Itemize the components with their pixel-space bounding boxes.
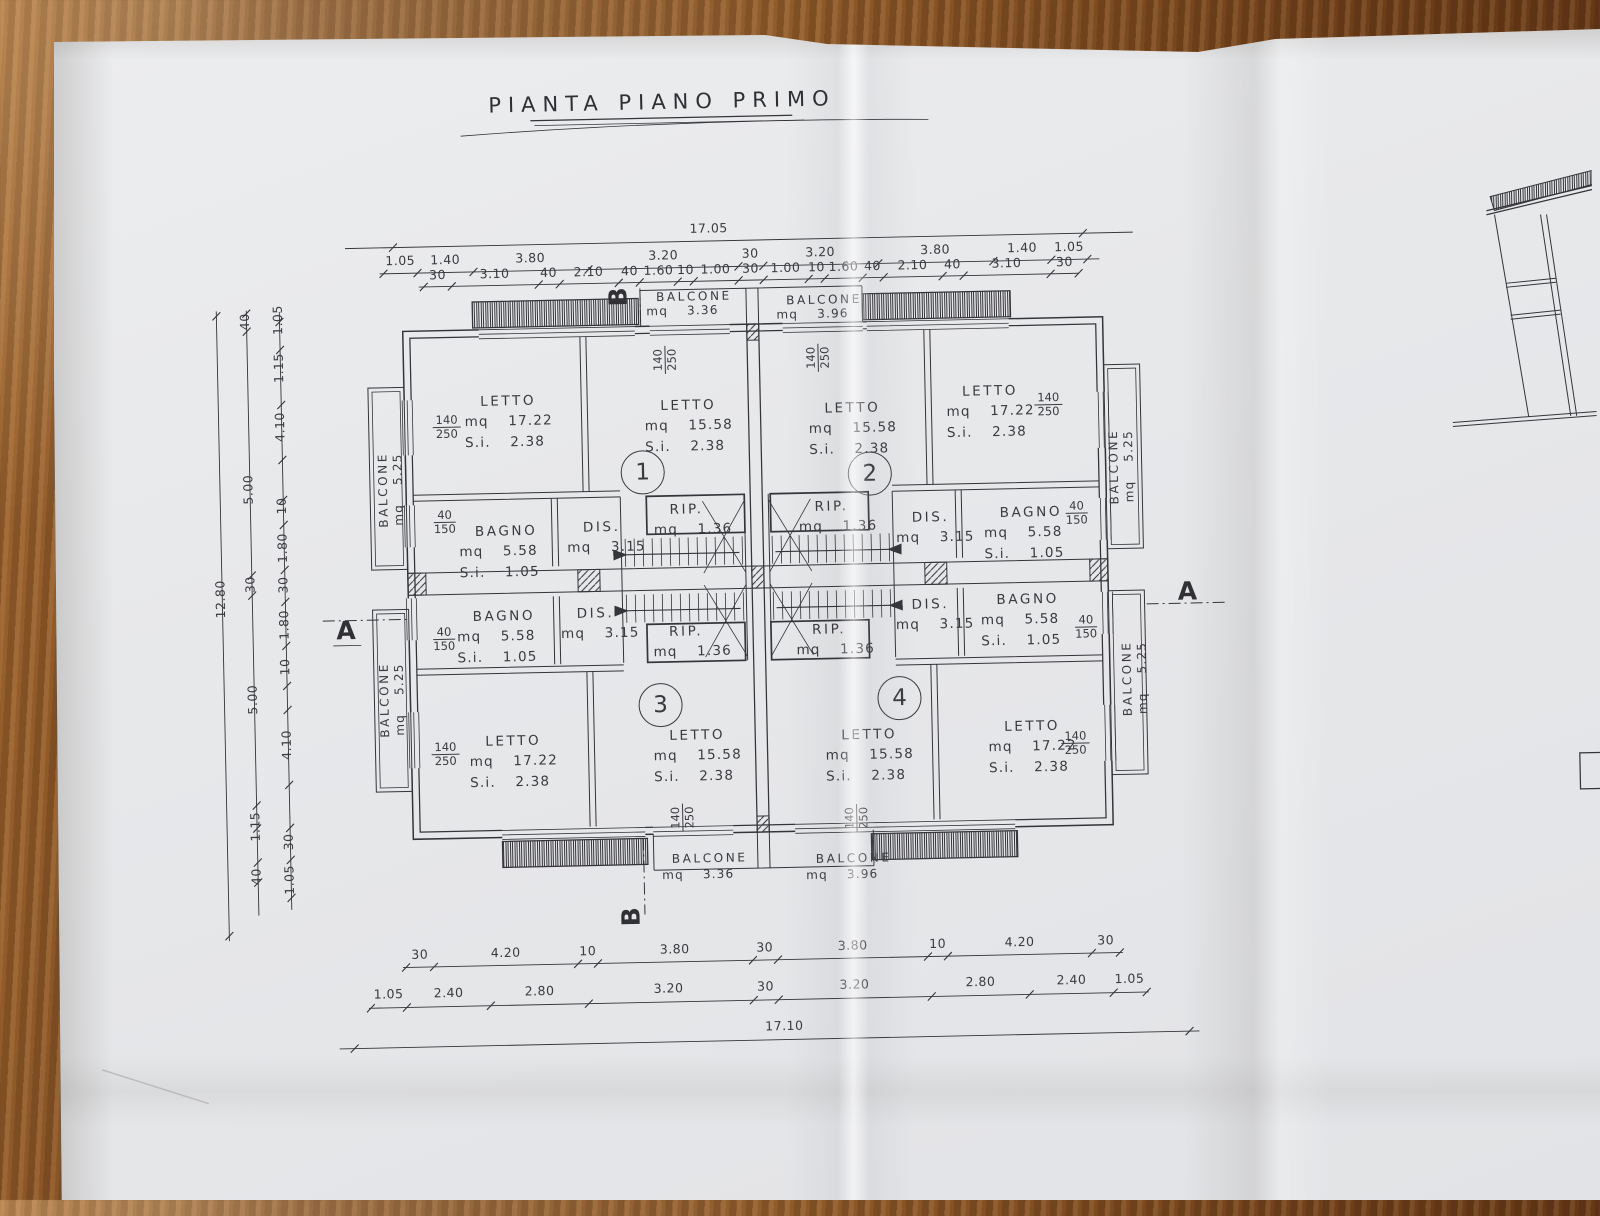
balcone-side-left-top: BALCONE mq 5.25 — [375, 452, 407, 528]
room-si: S.i. 1.05 — [981, 629, 1061, 651]
balcone-top-left: BALCONE mq 3.36 — [646, 289, 732, 320]
window-size-140-250: 140 250 — [431, 741, 460, 769]
window-size-140-250: 140 250 — [651, 346, 679, 375]
room-name: BALCONE — [1106, 429, 1123, 505]
window-size-140-250: 140 250 — [843, 804, 871, 833]
balcone-side-right-top: BALCONE mq 5.25 — [1106, 428, 1138, 504]
dim-bot2-2: 2.80 — [524, 983, 554, 999]
room-si: S.i. 2.38 — [470, 771, 559, 793]
window-height: 250 — [857, 804, 871, 832]
dim-bot2-1: 2.40 — [433, 985, 463, 1001]
dim-bottom-overall: 17.10 — [765, 1018, 804, 1034]
dim-top3-4: 40 — [621, 263, 638, 278]
room-area: mq 3.15 — [896, 527, 975, 549]
room-name: DIS. — [576, 603, 639, 625]
dim-bot2-3: 3.20 — [653, 980, 683, 996]
dim-top2-4: 30 — [742, 245, 759, 260]
dim-top2-6: 3.80 — [920, 241, 950, 257]
dim-top3-14: 40 — [944, 256, 961, 271]
room-name: DIS. — [912, 507, 975, 529]
room-name: LETTO — [480, 390, 553, 412]
dim-top3-6: 10 — [677, 262, 694, 277]
room-name: BAGNO — [473, 606, 537, 628]
dim-lin-5: 30 — [275, 576, 290, 593]
room-area: mq 3.96 — [776, 306, 862, 322]
room-name: LETTO — [669, 724, 742, 746]
room-name: DIS. — [583, 516, 646, 538]
room-area: mq 3.36 — [662, 866, 748, 883]
room-name: RIP. — [814, 496, 877, 518]
room-area: mq 17.22 — [464, 411, 553, 433]
dim-top2-0: 1.05 — [385, 253, 415, 269]
room-si: S.i. 2.38 — [654, 765, 743, 787]
balcone-bottom-right: BALCONE mq 3.96 — [806, 850, 892, 883]
room-area: mq 15.58 — [825, 744, 914, 766]
room-area: mq 5.25 — [390, 452, 407, 528]
dim-lin-6: 1.80 — [276, 610, 292, 640]
room-name: BALCONE — [816, 850, 892, 867]
window-size-140-250: 140 250 — [432, 414, 461, 442]
section-marker-b-top: B — [603, 287, 632, 307]
room-name: DIS. — [911, 594, 974, 616]
dim-top2-3: 3.20 — [648, 247, 678, 263]
window-size-140-250: 140 250 — [1034, 391, 1063, 419]
room-name: LETTO — [962, 380, 1035, 402]
dim-bot1-0: 30 — [411, 947, 428, 962]
room-name: BALCONE — [375, 452, 392, 528]
dim-top2-7: 1.40 — [1007, 240, 1037, 256]
dim-lin-2: 4.10 — [272, 412, 288, 442]
dim-top3-10: 10 — [808, 259, 825, 274]
dim-top-overall: 17.05 — [689, 220, 728, 236]
window-height: 250 — [819, 343, 833, 371]
room-rip-bl: RIP. mq 1.36 — [653, 621, 732, 663]
dim-bot2-7: 2.40 — [1056, 972, 1086, 988]
room-dis-rb: DIS. mq 3.15 — [895, 594, 974, 636]
room-letto-bl-a: LETTO mq 17.22 S.i. 2.38 — [469, 730, 559, 793]
balcone-side-left-bottom: BALCONE mq 5.25 — [377, 662, 409, 738]
room-name: LETTO — [660, 395, 733, 417]
room-dis-rt: DIS. mq 3.15 — [896, 507, 975, 549]
room-rip-tr: RIP. mq 1.36 — [798, 496, 877, 538]
room-area: mq 3.96 — [806, 866, 892, 883]
room-area: mq 5.25 — [1121, 428, 1138, 504]
dim-top3-16: 30 — [1056, 254, 1073, 269]
dim-bot1-2: 10 — [579, 943, 596, 958]
window-size-140-250: 140 250 — [669, 803, 697, 832]
dim-bot1-3: 3.80 — [660, 941, 690, 957]
room-name: RIP. — [812, 619, 875, 641]
dim-bot2-8: 1.05 — [1114, 971, 1144, 987]
window-height: 150 — [433, 640, 455, 654]
dim-top3-7: 1.00 — [700, 261, 730, 277]
room-rip-tl: RIP. mq 1.36 — [653, 499, 732, 541]
room-area: mq 5.58 — [984, 522, 1064, 544]
room-area: mq 17.22 — [470, 751, 559, 773]
window-size-140-250: 140 250 — [1061, 729, 1090, 757]
room-bagno-rb: BAGNO mq 5.58 S.i. 1.05 — [980, 589, 1061, 651]
dim-lin-8: 4.10 — [279, 730, 295, 760]
dim-bot1-1: 4.20 — [491, 945, 521, 961]
window-height: 250 — [683, 803, 697, 831]
room-area: mq 5.58 — [981, 609, 1061, 631]
dim-top3-9: 1.00 — [770, 260, 800, 276]
balcone-top-right: BALCONE mq 3.96 — [776, 292, 862, 323]
room-si: S.i. 1.05 — [460, 561, 540, 583]
dim-bot2-0: 1.05 — [374, 986, 404, 1002]
dim-top3-1: 3.10 — [479, 266, 509, 282]
room-name: RIP. — [669, 499, 732, 521]
room-name: LETTO — [824, 397, 897, 419]
dim-lin-1: 1.15 — [271, 353, 287, 383]
dim-bot1-6: 10 — [929, 936, 946, 951]
room-rip-br: RIP. mq 1.36 — [796, 619, 875, 661]
room-area: mq 1.36 — [654, 519, 733, 541]
section-marker-b-bottom: B — [616, 907, 645, 927]
dim-lmid-4: 1.15 — [247, 812, 263, 842]
room-area: mq 15.58 — [809, 417, 898, 439]
room-name: BAGNO — [996, 589, 1060, 611]
room-area: mq 5.25 — [392, 662, 409, 738]
dim-top3-2: 40 — [540, 265, 557, 280]
room-name: BAGNO — [475, 521, 539, 543]
dim-top3-3: 2.10 — [573, 264, 603, 280]
room-area: mq 3.15 — [561, 623, 640, 645]
dim-top3-13: 2.10 — [897, 257, 927, 273]
window-size-40-150: 40 150 — [1065, 499, 1088, 527]
room-name: BALCONE — [672, 850, 748, 867]
dim-bot1-5: 3.80 — [838, 937, 868, 953]
room-area: mq 3.36 — [646, 303, 732, 319]
dim-bot1-4: 30 — [756, 939, 773, 954]
window-height: 250 — [1062, 744, 1090, 758]
dim-bot2-5: 3.20 — [839, 976, 869, 992]
room-name: BALCONE — [1119, 640, 1136, 716]
room-name: LETTO — [841, 724, 914, 746]
room-si: S.i. 2.38 — [645, 435, 734, 457]
dim-top2-2: 3.80 — [515, 250, 545, 266]
section-marker-a-left: A — [336, 616, 356, 645]
balcone-side-right-bottom: BALCONE mq 5.25 — [1119, 640, 1151, 716]
room-area: mq 17.22 — [946, 400, 1035, 422]
dim-bot2-4: 30 — [757, 978, 774, 993]
window-size-40-150: 40 150 — [1075, 613, 1098, 641]
dim-lmid-5: 40 — [248, 868, 263, 885]
floor-plan-drawing: PIANTA PIANO PRIMO 17.05 1.05 1.40 3.80 … — [0, 0, 1600, 1216]
room-si: S.i. 2.38 — [465, 431, 554, 453]
dim-lin-4: 1.80 — [274, 533, 290, 563]
stray-pencil-line — [102, 1068, 209, 1106]
room-area: mq 1.36 — [653, 641, 732, 663]
dim-lin-9: 30 — [281, 833, 296, 850]
window-height: 250 — [433, 428, 461, 442]
dim-top3-11: 1.60 — [828, 258, 858, 274]
room-letto-tr-a: LETTO mq 15.58 S.i. 2.38 — [808, 397, 898, 460]
plan-linework — [0, 0, 1600, 1216]
window-height: 250 — [666, 346, 680, 374]
dim-bot2-6: 2.80 — [965, 974, 995, 990]
room-name: BALCONE — [656, 289, 732, 305]
room-area: mq 3.15 — [567, 537, 646, 559]
dim-lmid-1: 5.00 — [240, 475, 256, 505]
dim-top2-5: 3.20 — [805, 244, 835, 260]
window-height: 150 — [434, 523, 456, 537]
room-area: mq 5.58 — [457, 626, 537, 648]
room-bagno-lt: BAGNO mq 5.58 S.i. 1.05 — [459, 521, 540, 583]
dim-lin-7: 10 — [277, 658, 292, 675]
room-area: mq 5.58 — [459, 541, 539, 563]
dim-lin-3: 10 — [274, 497, 289, 514]
dim-bot1-7: 4.20 — [1005, 934, 1035, 950]
dim-lmid-3: 5.00 — [245, 685, 261, 715]
dim-top3-5: 1.60 — [643, 262, 673, 278]
room-bagno-rt: BAGNO mq 5.58 S.i. 1.05 — [983, 502, 1064, 564]
room-area: mq 15.58 — [653, 745, 742, 767]
room-letto-tr-b: LETTO mq 17.22 S.i. 2.38 — [946, 380, 1036, 443]
dim-top2-8: 1.05 — [1054, 239, 1084, 255]
dim-top3-12: 40 — [864, 258, 881, 273]
dim-lin-10: 1.05 — [281, 865, 297, 895]
room-name: BAGNO — [999, 502, 1063, 524]
dim-left-overall: 12.80 — [212, 580, 228, 619]
room-letto-bl-b: LETTO mq 15.58 S.i. 2.38 — [653, 724, 743, 787]
room-area: mq 15.58 — [645, 415, 734, 437]
room-letto-br-a: LETTO mq 15.58 S.i. 2.38 — [825, 724, 915, 787]
dim-lmid-2: 30 — [242, 576, 257, 593]
room-name: BALCONE — [786, 292, 862, 308]
room-name: LETTO — [485, 730, 558, 752]
dim-top3-8: 30 — [742, 260, 759, 275]
room-letto-tl-b: LETTO mq 15.58 S.i. 2.38 — [644, 395, 734, 458]
room-name: RIP. — [669, 621, 732, 643]
dim-top3-0: 30 — [429, 267, 446, 282]
room-name: BALCONE — [377, 662, 394, 738]
room-letto-tl-a: LETTO mq 17.22 S.i. 2.38 — [464, 390, 554, 453]
window-height: 150 — [1075, 627, 1097, 641]
dim-bot1-8: 30 — [1097, 932, 1114, 947]
balcone-bottom-left: BALCONE mq 3.36 — [662, 850, 748, 883]
window-size-40-150: 40 150 — [433, 509, 456, 537]
window-height: 150 — [1066, 514, 1088, 528]
room-si: S.i. 1.05 — [984, 542, 1064, 564]
window-height: 250 — [1034, 405, 1062, 419]
room-area: mq 3.15 — [896, 614, 975, 636]
dim-lmid-0: 40 — [237, 313, 252, 330]
room-si: S.i. 1.05 — [457, 646, 537, 668]
room-si: S.i. 2.38 — [989, 756, 1078, 778]
window-size-40-150: 40 150 — [433, 626, 456, 654]
room-bagno-lb: BAGNO mq 5.58 S.i. 1.05 — [457, 606, 538, 668]
dim-lin-0: 1.05 — [270, 305, 286, 335]
window-height: 250 — [432, 755, 460, 769]
elevation-sketch — [1448, 170, 1600, 791]
room-dis-lt: DIS. mq 3.15 — [567, 516, 646, 558]
section-marker-a-right: A — [1177, 576, 1197, 605]
room-area: mq 5.25 — [1134, 640, 1151, 716]
dim-top3-15: 3.10 — [991, 255, 1021, 271]
window-size-140-250: 140 250 — [804, 343, 832, 372]
room-si: S.i. 2.38 — [947, 421, 1036, 443]
room-dis-lb: DIS. mq 3.15 — [560, 603, 639, 645]
room-area: mq 1.36 — [799, 516, 878, 538]
room-area: mq 1.36 — [796, 639, 875, 661]
room-si: S.i. 2.38 — [826, 764, 915, 786]
dim-top2-1: 1.40 — [430, 252, 460, 268]
